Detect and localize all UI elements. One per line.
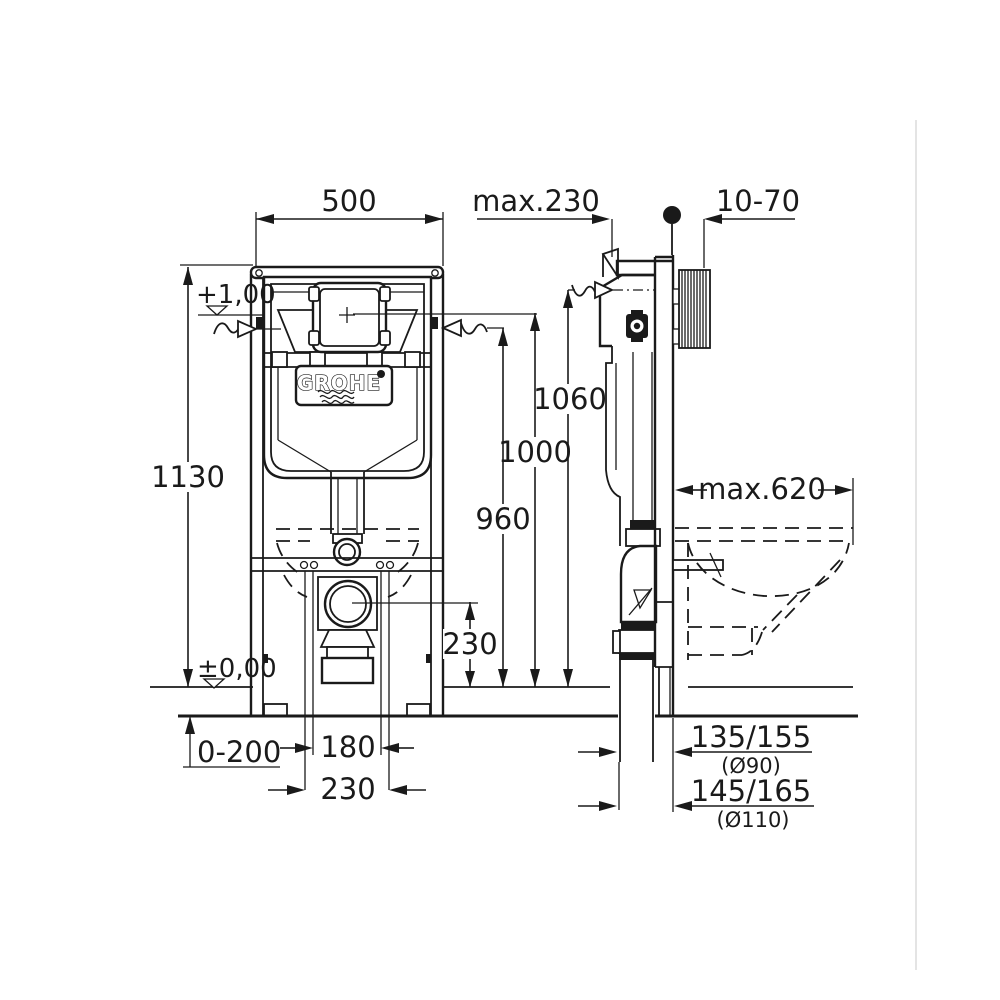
dim-frame-width: 500 [321, 184, 376, 218]
mounting-bolt [301, 562, 308, 569]
dim-height-960: 960 [475, 502, 530, 536]
dim-bolt-spacing-230: 230 [320, 772, 375, 806]
frame-screw-hole [432, 270, 438, 276]
outlet-pipe-front [322, 658, 373, 683]
frame-screw-hole [256, 270, 262, 276]
frame-foot [264, 704, 287, 716]
frame-foot [407, 704, 430, 716]
flushplate-box-hatched [673, 270, 710, 348]
level-marker-plus: +1,00 [196, 280, 276, 315]
dim-outlet-dia-110: (Ø110) [717, 808, 790, 832]
dim-frame-height: 1130 [151, 460, 225, 494]
dim-height-1000: 1000 [498, 435, 572, 469]
wall-reference-dot [663, 206, 681, 224]
frame-rail-side [655, 255, 673, 717]
dim-outlet-height-230: 230 [442, 627, 497, 661]
floor-lines [150, 687, 858, 716]
flush-actuation-arrow-right-icon [443, 320, 504, 336]
mounting-bolt [377, 562, 384, 569]
dim-outlet-145-165: 145/165 [691, 774, 811, 808]
dim-max-depth: max.230 [472, 184, 600, 218]
outlet-elbow [621, 546, 656, 622]
technical-drawing-page: GROHE [0, 0, 1000, 1000]
flush-plate-opening [309, 283, 390, 352]
mounting-bolt [387, 562, 394, 569]
front-view: GROHE [251, 267, 443, 790]
registered-mark-dot [377, 370, 385, 378]
bowl-outline-side-dashed [675, 528, 853, 660]
mounting-bolt [311, 562, 318, 569]
outlet-flare [321, 630, 374, 647]
brand-name: GROHE [297, 371, 381, 395]
rail-clamp [426, 654, 431, 663]
valve-fitting-icon [626, 310, 648, 342]
flush-actuation-arrow-side-icon [568, 282, 654, 298]
rail-clamp [256, 317, 263, 329]
wall-bracket [603, 249, 618, 277]
dim-wall-finish: 10-70 [716, 184, 800, 218]
dimensions: 500 max.230 10-70 1130 +1,00 ±0,00 [151, 184, 853, 832]
grohe-logo: GROHE [296, 366, 392, 405]
installation-drawing: GROHE [0, 0, 1000, 1000]
dim-height-1060: 1060 [533, 382, 607, 416]
dim-floor-range: 0-200 [197, 735, 281, 769]
level-marker-zero: ±0,00 [197, 654, 277, 688]
level-triangle-icon [207, 306, 227, 315]
dim-bolt-spacing-180: 180 [320, 730, 375, 764]
dim-max-bowl-depth: max.620 [698, 472, 826, 506]
dim-outlet-135-155: 135/155 [691, 720, 811, 754]
